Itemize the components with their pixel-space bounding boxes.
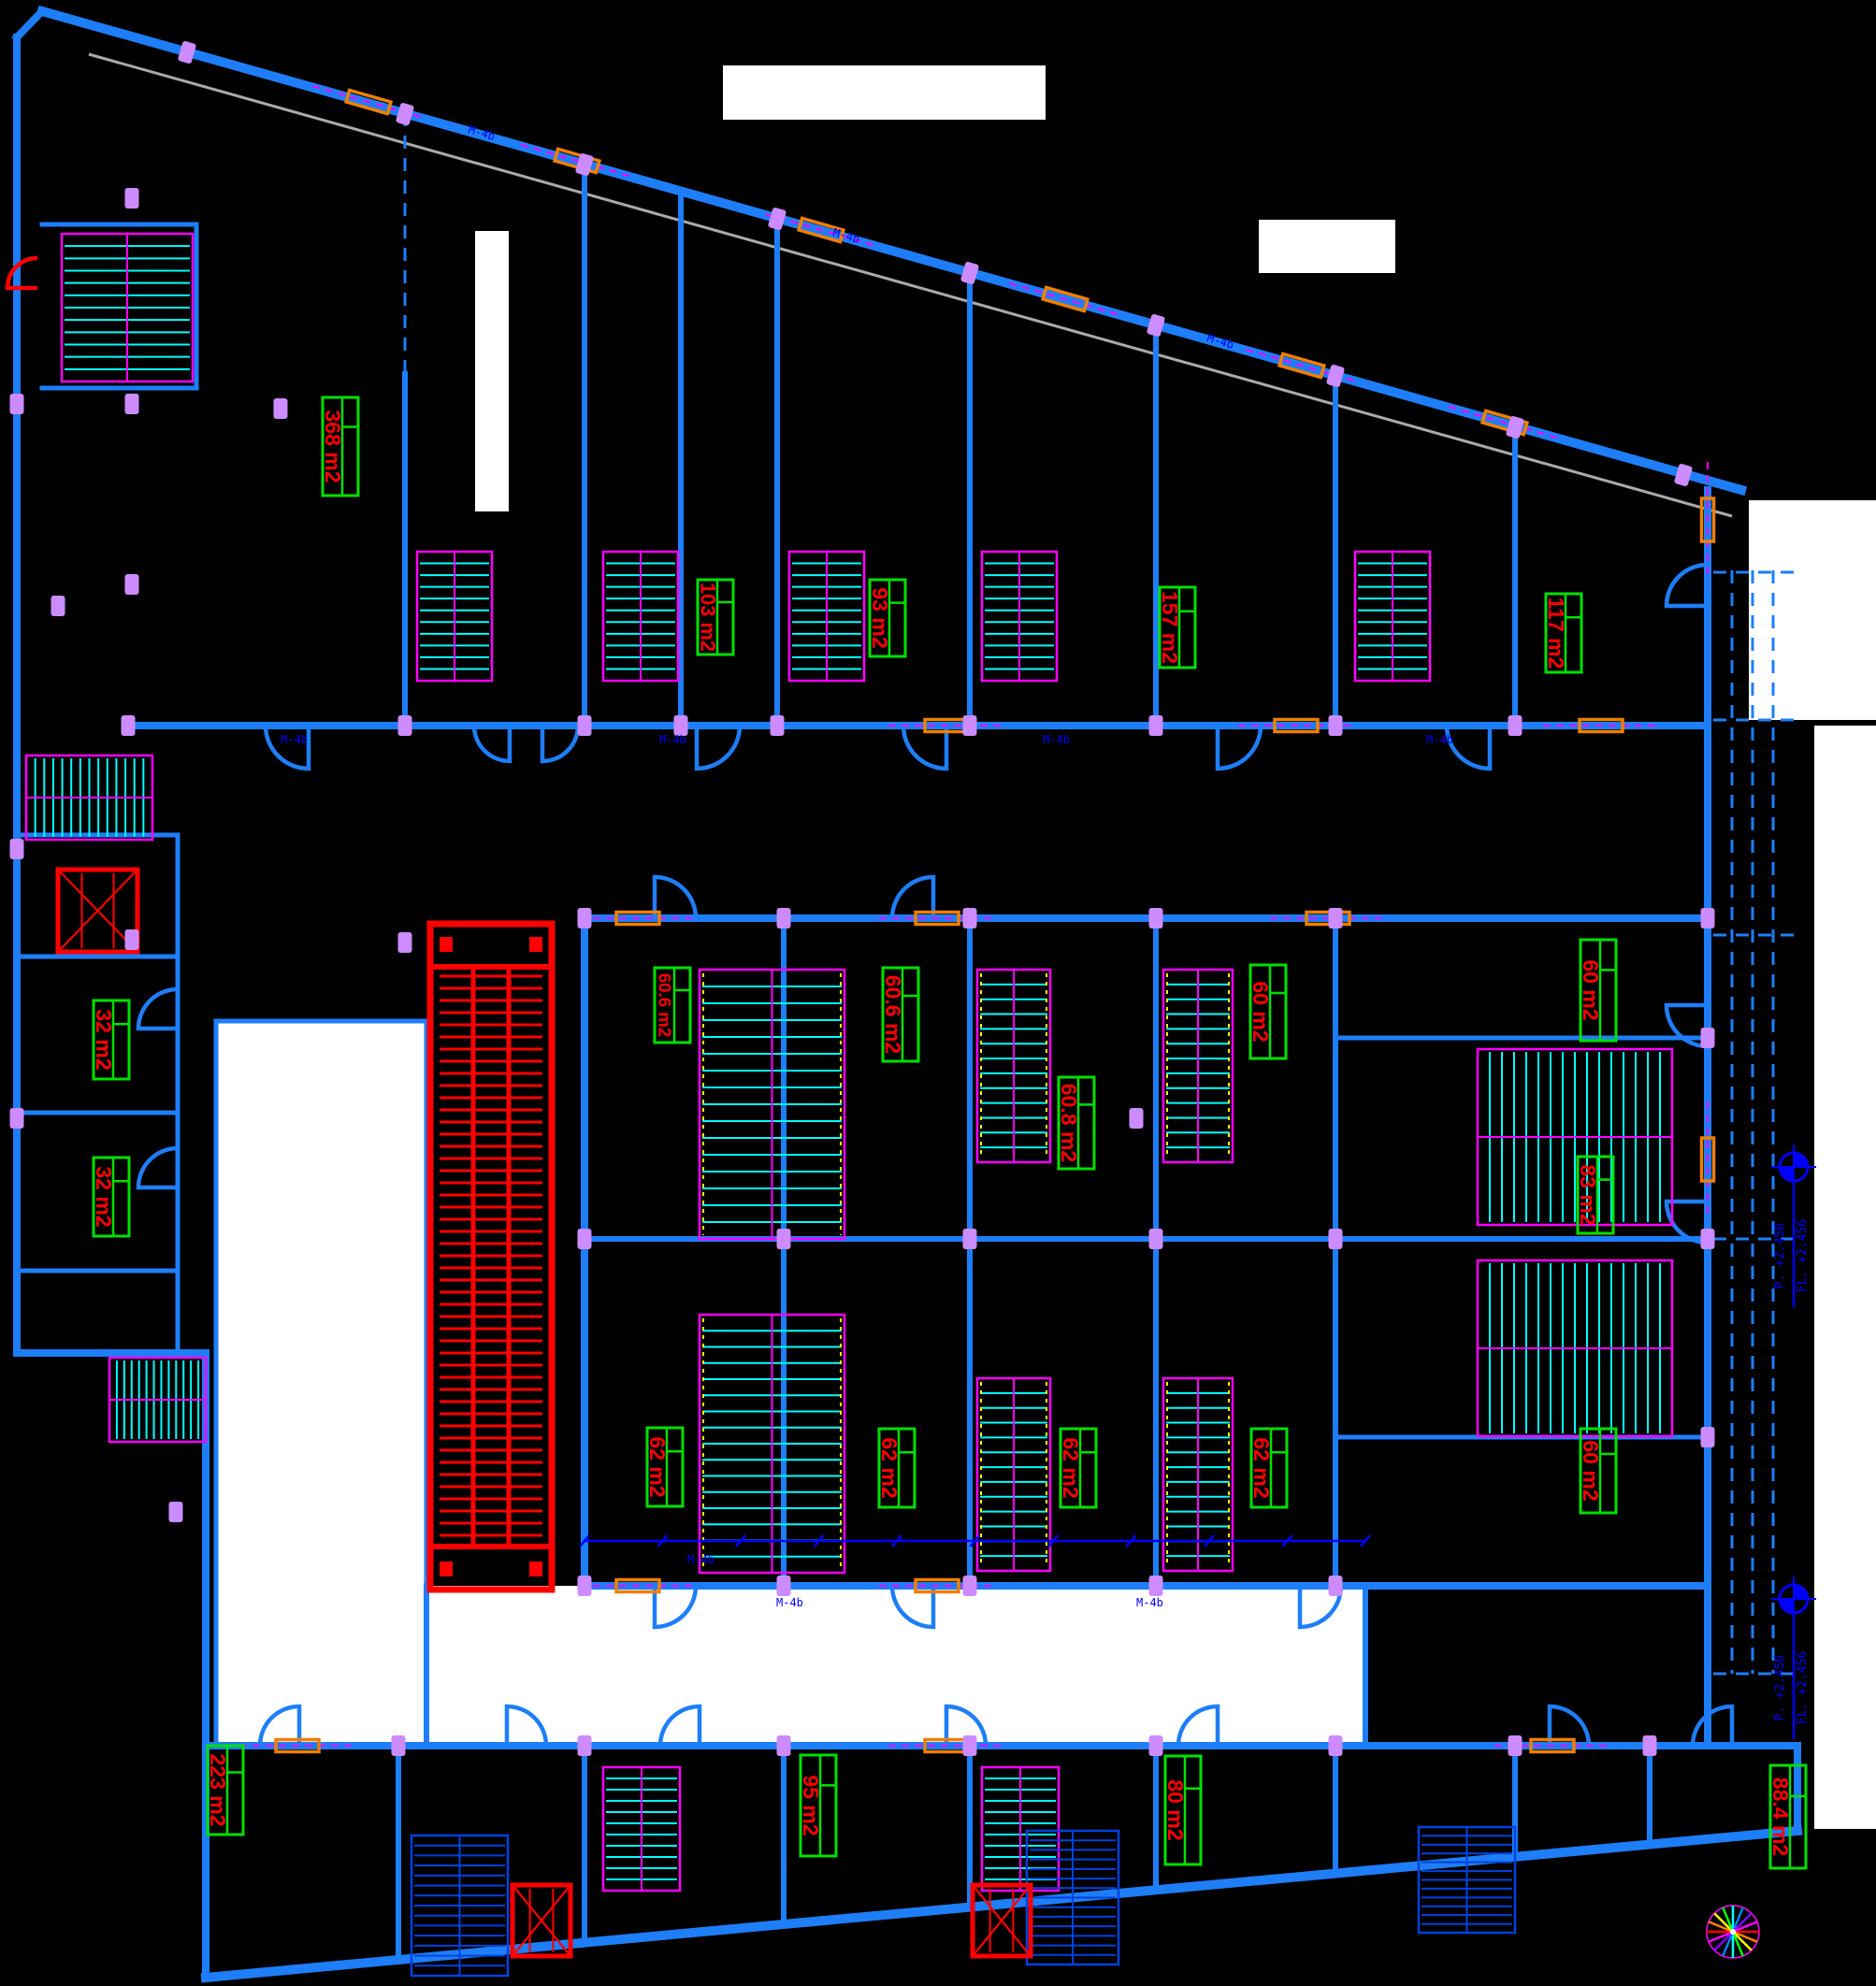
area-label-text: 88.4 m2 [1768,1777,1793,1856]
area-label-text: 60 m2 [1248,981,1273,1042]
column-marker [1329,715,1343,736]
column-marker [1701,1028,1715,1048]
dim-text: M-4b [659,733,686,746]
area-label-text: 60 m2 [1579,1440,1603,1501]
column-marker [578,1576,592,1596]
area-label-text: 103 m2 [697,583,720,652]
dim-text: M-4b [1043,733,1070,746]
column-marker [771,715,785,736]
column-marker [777,1576,791,1596]
level-marker-text: FL. +2.456 [1796,1651,1810,1724]
area-label-text: 95 m2 [799,1775,823,1835]
escalator-landing-pad [529,937,542,952]
void-area [1259,220,1395,273]
level-marker-text: P. +2.456 [1773,1223,1787,1288]
area-label-text: 62 m2 [1249,1437,1274,1498]
column-marker [578,1229,592,1249]
area-label-text: 62 m2 [1059,1437,1083,1498]
column-marker [51,596,65,616]
area-label-text: 60.6 m2 [881,975,905,1054]
column-marker [1149,715,1163,736]
void-area [1814,726,1876,1829]
escalator-landing-pad [440,937,453,952]
column-marker [274,398,288,419]
column-marker [777,1735,791,1756]
column-marker [10,1108,24,1129]
level-marker-text: FL. +2.456 [1796,1219,1810,1292]
column-marker [1149,1576,1163,1596]
dim-text: M-4b [1426,733,1453,746]
column-marker [1329,1229,1343,1249]
column-marker [1701,908,1715,928]
column-marker [578,715,592,736]
column-marker [1149,1735,1163,1756]
column-marker [963,908,977,928]
column-marker [169,1502,183,1522]
column-marker [1701,1229,1715,1249]
floor-plan-canvas: 368 m2103 m293 m2157 m2117 m232 m232 m26… [0,0,1876,1986]
area-label-text: 157 m2 [1158,591,1182,664]
column-marker [777,908,791,928]
column-marker [398,932,412,953]
column-marker [125,394,139,414]
area-label-text: 83 m2 [1576,1164,1600,1225]
column-marker [1701,1427,1715,1447]
column-marker [1329,1735,1343,1756]
area-label-text: 80 m2 [1163,1779,1188,1840]
area-label-text: 223 m2 [206,1753,230,1826]
void-area [475,231,509,511]
area-label-text: 60.8 m2 [1057,1084,1081,1162]
column-marker [1329,908,1343,928]
dim-text: M-4b [281,733,308,746]
escalator-landing-pad [529,1561,542,1576]
dim-text: M-4b [687,1553,714,1566]
stair-run [26,756,152,840]
void-area [723,65,1046,120]
column-marker [125,188,139,209]
column-marker [963,1229,977,1249]
column-marker [1149,1229,1163,1249]
column-marker [1508,715,1522,736]
column-marker [578,908,592,928]
column-marker [122,715,136,736]
area-label-text: 60.6 m2 [656,973,675,1038]
column-marker [963,1735,977,1756]
column-marker [963,715,977,736]
column-marker [1329,1576,1343,1596]
column-marker [1508,1735,1522,1756]
color-wheel-symbol [1707,1906,1759,1958]
column-marker [578,1735,592,1756]
column-marker [398,715,412,736]
void-area [426,1586,1365,1746]
column-marker [10,394,24,414]
column-marker [1130,1108,1144,1129]
level-marker-text: P. +2.456 [1773,1655,1787,1720]
area-label-text: 117 m2 [1544,597,1568,669]
color-wheel-hub [1730,1929,1736,1935]
dim-text: M-4b [1136,1596,1163,1609]
column-marker [392,1735,406,1756]
area-label-text: 32 m2 [92,1166,116,1227]
area-label-text: 62 m2 [877,1437,902,1498]
void-area [1749,500,1876,720]
column-marker [777,1229,791,1249]
column-marker [963,1576,977,1596]
area-label-text: 93 m2 [868,587,892,648]
dim-text: M-4b [776,1596,803,1609]
column-marker [1149,908,1163,928]
escalator-landing-pad [440,1561,453,1576]
area-label-text: 368 m2 [321,410,345,482]
area-label-text: 62 m2 [645,1436,670,1497]
column-marker [125,929,139,950]
column-marker [1643,1735,1657,1756]
area-label-text: 60 m2 [1579,959,1603,1020]
area-label-text: 32 m2 [92,1009,116,1070]
column-marker [10,839,24,859]
void-area [216,1021,426,1746]
column-marker [125,574,139,595]
